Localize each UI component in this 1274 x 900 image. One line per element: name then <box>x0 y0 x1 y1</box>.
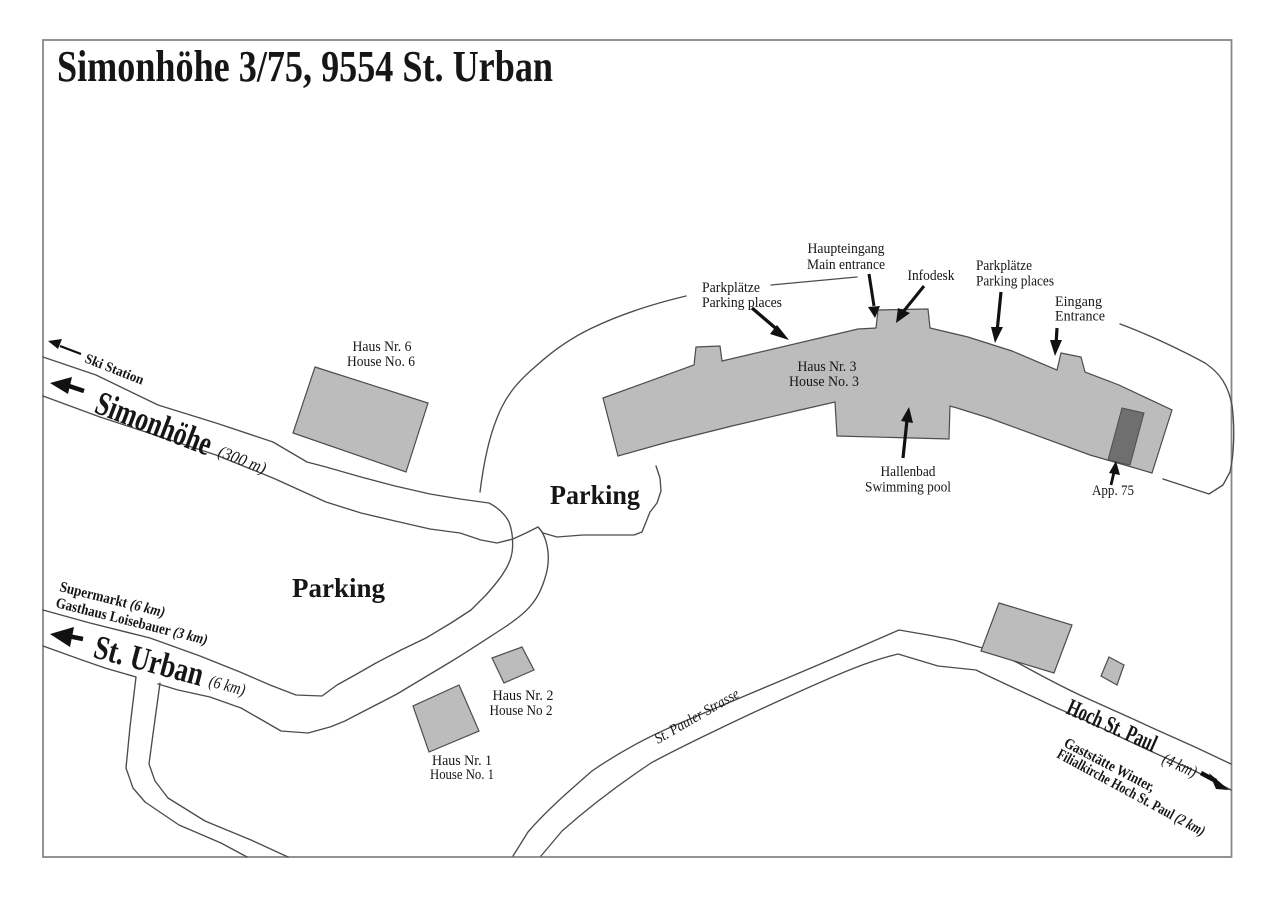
svg-text:Simonhöhe 3/75, 9554 St. Urban: Simonhöhe 3/75, 9554 St. Urban <box>57 42 553 91</box>
svg-text:Parkplätze: Parkplätze <box>976 258 1032 274</box>
svg-text:(300 m): (300 m) <box>216 442 270 478</box>
svg-text:Ski Station: Ski Station <box>83 352 146 389</box>
svg-text:St. Pauler Strasse: St. Pauler Strasse <box>652 686 743 748</box>
svg-text:Infodesk: Infodesk <box>908 268 955 284</box>
svg-text:House No. 3: House No. 3 <box>789 374 859 390</box>
svg-text:Haupteingang: Haupteingang <box>808 241 885 257</box>
svg-text:Parking: Parking <box>292 572 385 603</box>
svg-text:House No. 1: House No. 1 <box>430 767 494 783</box>
svg-text:Parking places: Parking places <box>976 274 1054 290</box>
svg-text:Haus Nr. 2: Haus Nr. 2 <box>493 688 554 704</box>
svg-text:House No 2: House No 2 <box>490 703 553 719</box>
svg-text:Entrance: Entrance <box>1055 309 1105 325</box>
svg-text:Simonhöhe: Simonhöhe <box>90 385 217 463</box>
svg-text:(4 km): (4 km) <box>1159 749 1200 781</box>
svg-text:Main entrance: Main entrance <box>807 257 885 273</box>
svg-text:Swimming pool: Swimming pool <box>865 480 951 496</box>
svg-text:Haus Nr. 6: Haus Nr. 6 <box>353 339 412 355</box>
svg-text:Parkplätze: Parkplätze <box>702 280 760 296</box>
svg-text:Parking: Parking <box>550 479 640 510</box>
svg-text:House No. 6: House No. 6 <box>347 354 415 370</box>
svg-text:(6 km): (6 km) <box>207 672 248 700</box>
svg-text:Hallenbad: Hallenbad <box>881 464 936 480</box>
svg-text:Haus Nr. 3: Haus Nr. 3 <box>798 359 857 375</box>
svg-text:App. 75: App. 75 <box>1092 483 1134 499</box>
svg-text:Parking places: Parking places <box>702 295 782 311</box>
